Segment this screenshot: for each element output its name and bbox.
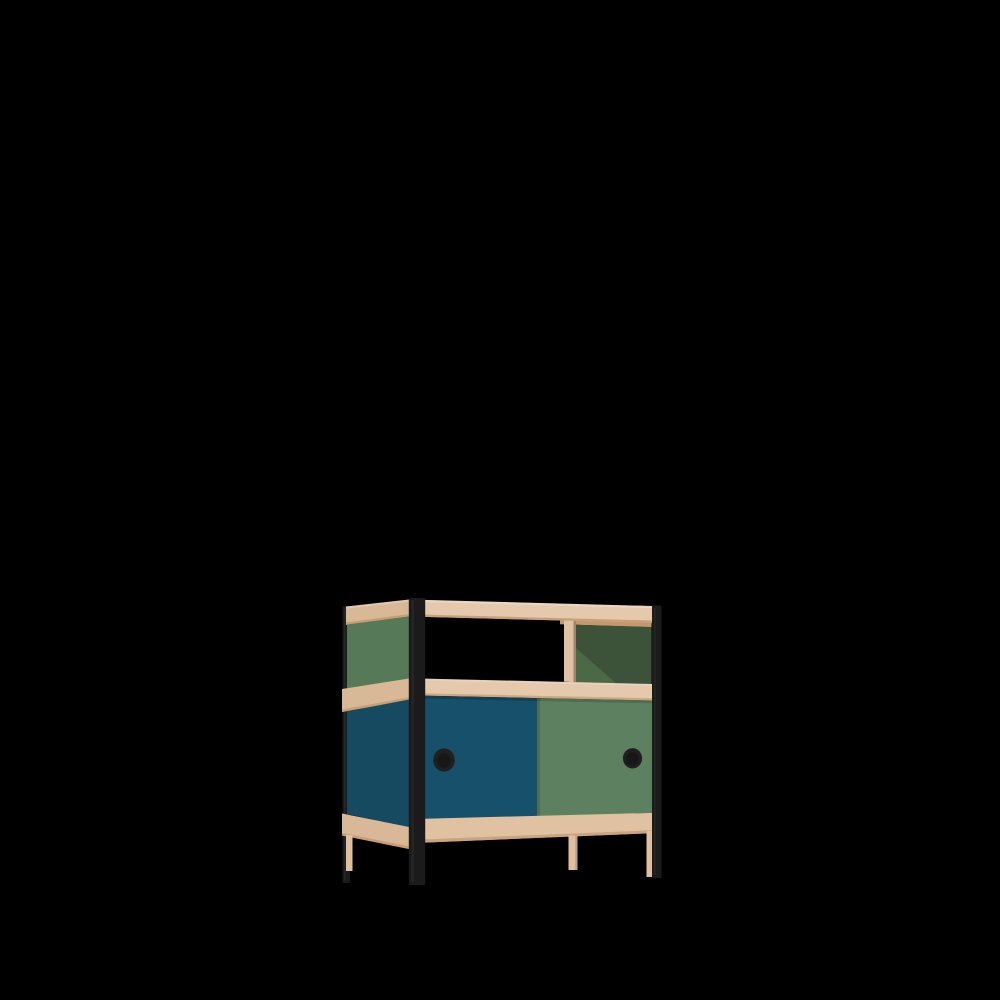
- compartment-divider-shadow: [574, 620, 577, 682]
- product-viewport: [0, 0, 1000, 1000]
- rear-left-post-highlight: [344, 608, 346, 880]
- front-right-post-highlight: [654, 608, 656, 875]
- side-panel-lower-blue: [347, 700, 409, 828]
- front-left-post: [409, 598, 425, 885]
- door-overlap-shadow: [537, 698, 540, 816]
- rear-left-wood-leg: [346, 835, 353, 871]
- middle-wood-leg-shade: [575, 836, 577, 871]
- sideboard-render: [0, 0, 1000, 1000]
- green-door-handle-recess: [627, 752, 639, 765]
- background: [0, 0, 1000, 1000]
- blue-door-handle-recess: [437, 753, 451, 768]
- side-panel-upper-green: [347, 617, 409, 690]
- front-right-wood-leg: [647, 831, 653, 877]
- front-left-post-highlight: [412, 600, 414, 882]
- front-right-post: [652, 606, 662, 879]
